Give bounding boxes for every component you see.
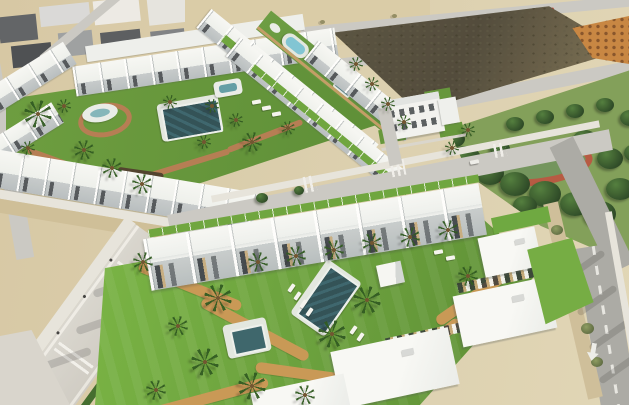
palm-tree <box>163 95 177 109</box>
palm-tree <box>229 113 243 127</box>
crosswalk <box>493 142 507 158</box>
palm-tree <box>286 246 306 266</box>
palm-tree <box>397 115 411 129</box>
roof-vent <box>514 238 525 245</box>
palm-tree <box>281 121 295 135</box>
palm-tree <box>74 140 94 160</box>
palm-tree <box>381 97 395 111</box>
pine-tree <box>536 110 554 124</box>
palm-tree <box>242 132 262 152</box>
verge-tree <box>581 323 594 334</box>
palm-tree <box>133 252 153 272</box>
palm-tree <box>461 123 475 137</box>
street-tree <box>294 186 304 195</box>
palm-tree <box>191 348 219 376</box>
palm-tree <box>168 316 188 336</box>
palm-tree <box>324 240 344 260</box>
palm-tree <box>57 99 71 113</box>
palm-tree <box>400 227 420 247</box>
palm-tree <box>353 286 381 314</box>
street-tree <box>256 193 268 203</box>
town-roof <box>0 14 38 44</box>
palm-tree <box>102 158 122 178</box>
palm-tree <box>438 220 458 240</box>
aerial-render <box>0 0 629 405</box>
palm-tree <box>238 372 266 400</box>
palm-tree <box>24 100 52 128</box>
palm-tree <box>146 380 166 400</box>
town-roof <box>147 0 189 26</box>
pine-tree <box>500 172 530 196</box>
pine-tree <box>596 98 614 112</box>
palm-tree <box>458 266 478 286</box>
shrub <box>320 20 325 24</box>
palm-tree <box>197 135 211 149</box>
palm-tree <box>132 174 152 194</box>
palm-tree <box>349 57 363 71</box>
palm-tree <box>204 284 232 312</box>
palm-tree <box>318 320 346 348</box>
pine-tree <box>506 117 524 131</box>
palm-tree <box>21 141 35 155</box>
palm-tree <box>365 77 379 91</box>
palm-tree <box>445 141 459 155</box>
palm-tree <box>248 252 268 272</box>
palm-tree <box>205 99 219 113</box>
palm-tree <box>362 233 382 253</box>
strip-fountain <box>268 21 282 35</box>
pine-tree <box>606 178 629 200</box>
pine-tree <box>624 144 629 162</box>
pine-tree <box>566 104 584 118</box>
verge-tree <box>551 225 563 235</box>
roof-vent <box>512 294 525 302</box>
roof-vent <box>401 348 414 356</box>
pine-tree <box>620 110 629 126</box>
building-wing <box>438 96 460 125</box>
palm-tree <box>295 385 315 405</box>
